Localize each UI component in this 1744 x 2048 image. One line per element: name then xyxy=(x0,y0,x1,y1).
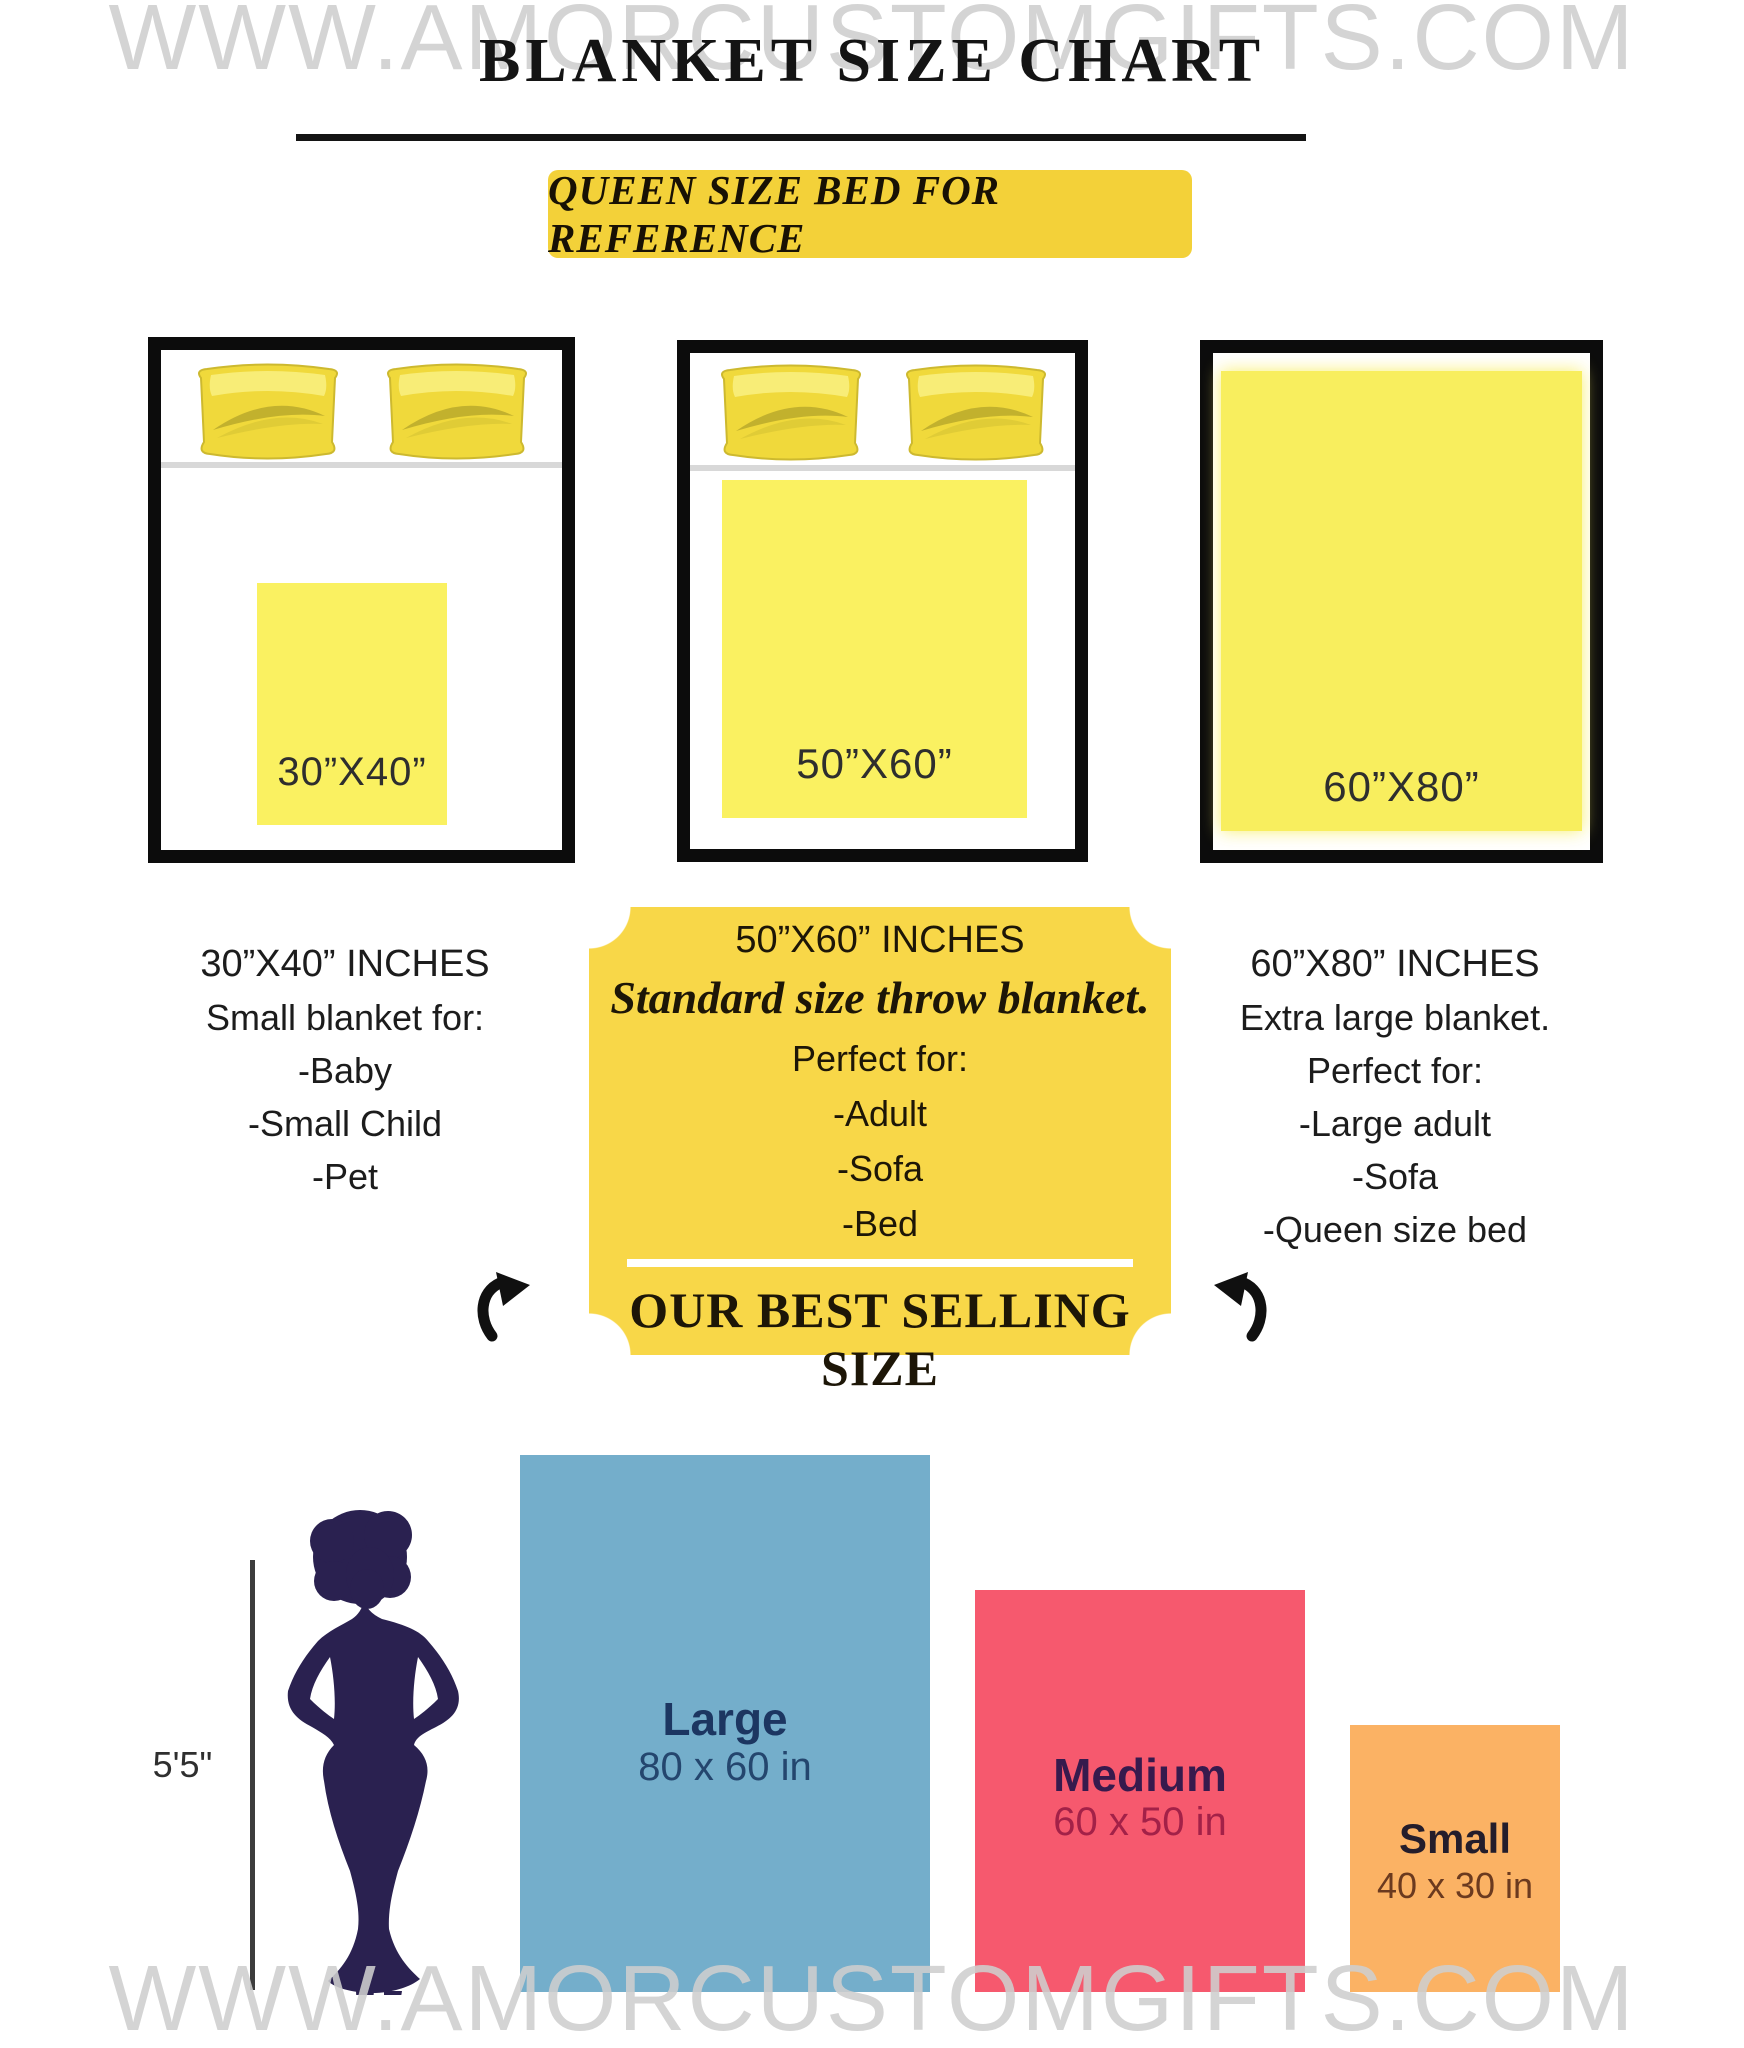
bed-diagram-large-blanket: 60”X80” xyxy=(1200,340,1603,863)
blanket-50x60: 50”X60” xyxy=(722,480,1027,818)
page-title: BLANKET SIZE CHART xyxy=(0,26,1744,97)
pillow-icon xyxy=(714,363,866,461)
curved-arrow-icon xyxy=(476,1270,538,1342)
size-bar-label: Medium xyxy=(975,1748,1305,1802)
badge-perfect-for: Perfect for: xyxy=(589,1038,1171,1080)
size-note-item: -Pet xyxy=(110,1150,580,1203)
best-selling-badge: 50”X60” INCHES Standard size throw blank… xyxy=(589,907,1171,1355)
blanket-size-chart-infographic: WWW.AMORCUSTOMGIFTS.COM WWW.AMORCUSTOMGI… xyxy=(0,0,1744,2048)
height-measure-line xyxy=(250,1560,255,1990)
size-bar-label: Small xyxy=(1350,1815,1560,1863)
size-bar-dimensions: 60 x 50 in xyxy=(975,1800,1305,1845)
size-note-item: -Queen size bed xyxy=(1160,1203,1630,1256)
size-note-item: -Baby xyxy=(110,1044,580,1097)
size-bar-large: Large 80 x 60 in xyxy=(520,1455,930,1992)
size-note-title: 30”X40” INCHES xyxy=(110,938,580,991)
blanket-60x80: 60”X80” xyxy=(1221,371,1582,831)
badge-item: -Adult xyxy=(589,1093,1171,1135)
size-note-60x80: 60”X80” INCHES Extra large blanket. Perf… xyxy=(1160,938,1630,1256)
pillow-icon xyxy=(899,363,1051,461)
reference-banner-label: QUEEN SIZE BED FOR REFERENCE xyxy=(548,166,1192,262)
blanket-size-label: 30”X40” xyxy=(277,750,426,825)
badge-title: 50”X60” INCHES xyxy=(589,919,1171,962)
size-note-title: 60”X80” INCHES xyxy=(1160,938,1630,991)
size-bar-medium: Medium 60 x 50 in xyxy=(975,1590,1305,1992)
person-height-label: 5'5" xyxy=(130,1744,235,1786)
size-note-30x40: 30”X40” INCHES Small blanket for: -Baby … xyxy=(110,938,580,1203)
badge-divider xyxy=(627,1259,1133,1267)
blanket-size-label: 60”X80” xyxy=(1323,763,1479,831)
bed-diagram-medium-blanket: 50”X60” xyxy=(677,340,1088,862)
size-bar-dimensions: 80 x 60 in xyxy=(520,1745,930,1790)
size-note-item: -Small Child xyxy=(110,1097,580,1150)
title-underline xyxy=(296,134,1306,141)
size-bar-label: Large xyxy=(520,1692,930,1746)
pillow-icon xyxy=(380,362,532,460)
badge-footer: OUR BEST SELLING SIZE xyxy=(589,1281,1171,1397)
bed-sheet-line xyxy=(161,462,562,468)
reference-banner: QUEEN SIZE BED FOR REFERENCE xyxy=(548,170,1192,258)
badge-item: -Bed xyxy=(589,1203,1171,1245)
size-bar-dimensions: 40 x 30 in xyxy=(1350,1865,1560,1907)
blanket-size-label: 50”X60” xyxy=(796,740,952,818)
size-note-item: -Large adult xyxy=(1160,1097,1630,1150)
curved-arrow-icon xyxy=(1206,1270,1268,1342)
bed-sheet-line xyxy=(690,465,1075,471)
size-note-subtitle: Extra large blanket. xyxy=(1160,991,1630,1044)
blanket-30x40: 30”X40” xyxy=(257,583,447,825)
size-note-subtitle: Small blanket for: xyxy=(110,991,580,1044)
size-note-perfect-for: Perfect for: xyxy=(1160,1044,1630,1097)
badge-tagline: Standard size throw blanket. xyxy=(589,971,1171,1024)
badge-item: -Sofa xyxy=(589,1148,1171,1190)
size-note-item: -Sofa xyxy=(1160,1150,1630,1203)
watermark-bottom: WWW.AMORCUSTOMGIFTS.COM xyxy=(0,1945,1744,2048)
bed-diagram-small-blanket: 30”X40” xyxy=(148,337,575,863)
pillow-icon xyxy=(191,362,343,460)
woman-silhouette-icon xyxy=(268,1505,486,1995)
